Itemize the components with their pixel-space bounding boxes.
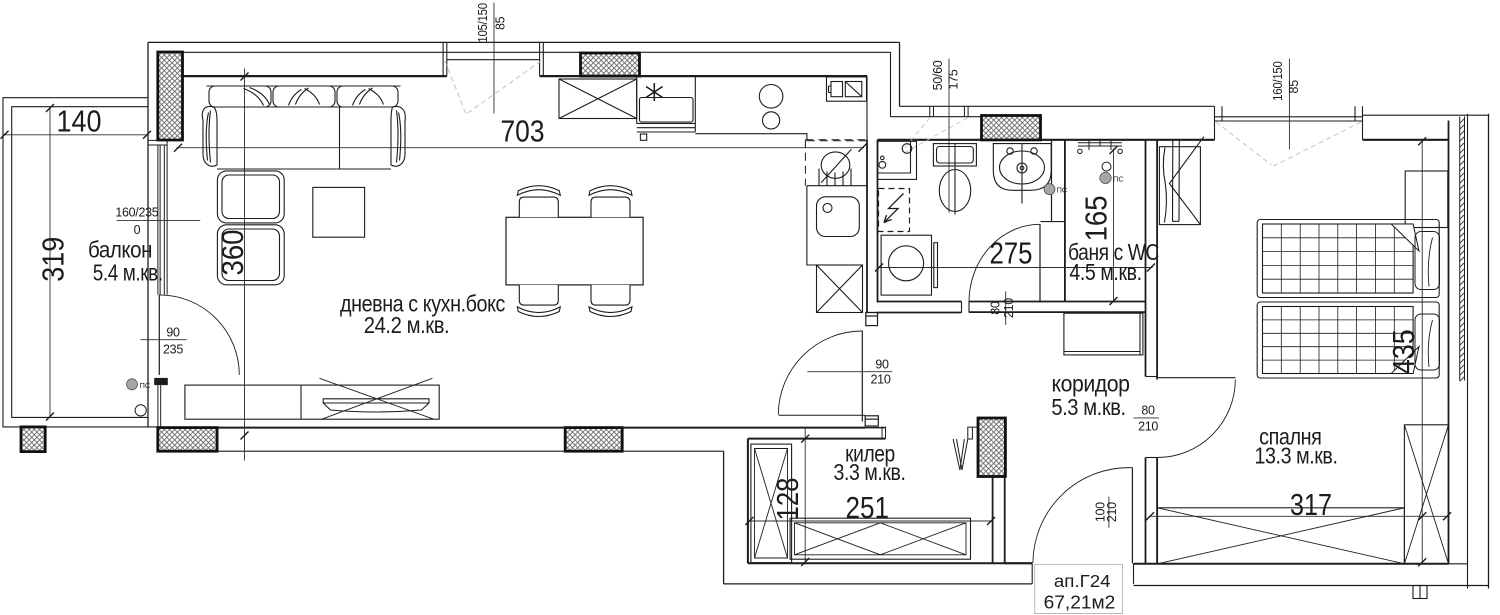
svg-text:13.3 м.кв.: 13.3 м.кв. [1255, 443, 1338, 469]
svg-text:105/150: 105/150 [476, 3, 490, 43]
svg-text:ПС: ПС [140, 381, 151, 390]
svg-text:140: 140 [57, 105, 102, 139]
svg-text:коридор: коридор [1052, 371, 1130, 397]
svg-text:319: 319 [37, 237, 71, 282]
svg-text:165: 165 [1079, 195, 1113, 241]
svg-text:251: 251 [846, 491, 890, 525]
svg-text:67,21м2: 67,21м2 [1044, 592, 1116, 613]
svg-text:3.3 м.кв.: 3.3 м.кв. [834, 459, 906, 485]
svg-text:210: 210 [1105, 502, 1119, 522]
svg-text:24.2 м.кв.: 24.2 м.кв. [364, 312, 449, 338]
svg-text:703: 703 [501, 115, 545, 149]
svg-text:ПС: ПС [1113, 175, 1124, 184]
svg-text:235: 235 [163, 342, 183, 356]
svg-text:160/150: 160/150 [1271, 61, 1285, 101]
svg-text:210: 210 [1002, 298, 1016, 318]
svg-text:360: 360 [216, 230, 250, 276]
svg-text:210: 210 [1138, 420, 1158, 434]
svg-text:435: 435 [1387, 329, 1421, 374]
svg-text:85: 85 [1287, 80, 1301, 94]
svg-text:317: 317 [1290, 488, 1332, 522]
svg-text:85: 85 [494, 16, 508, 30]
svg-text:5.4 м.кв.: 5.4 м.кв. [93, 260, 163, 286]
svg-text:128: 128 [771, 478, 805, 521]
svg-text:275: 275 [990, 236, 1033, 270]
svg-text:ПС: ПС [1057, 186, 1068, 195]
svg-text:50/60: 50/60 [931, 60, 945, 90]
svg-text:90: 90 [166, 325, 180, 339]
svg-text:210: 210 [871, 372, 891, 386]
svg-text:ап.Г24: ап.Г24 [1054, 571, 1111, 591]
svg-text:160/235: 160/235 [115, 205, 158, 219]
svg-text:4.5 м.кв.: 4.5 м.кв. [1069, 259, 1141, 285]
svg-text:80: 80 [989, 301, 1003, 315]
svg-text:90: 90 [875, 358, 889, 372]
svg-text:5.3 м.кв.: 5.3 м.кв. [1051, 394, 1125, 420]
svg-text:80: 80 [1141, 404, 1155, 418]
svg-text:175: 175 [947, 69, 961, 89]
svg-text:0: 0 [134, 223, 141, 237]
